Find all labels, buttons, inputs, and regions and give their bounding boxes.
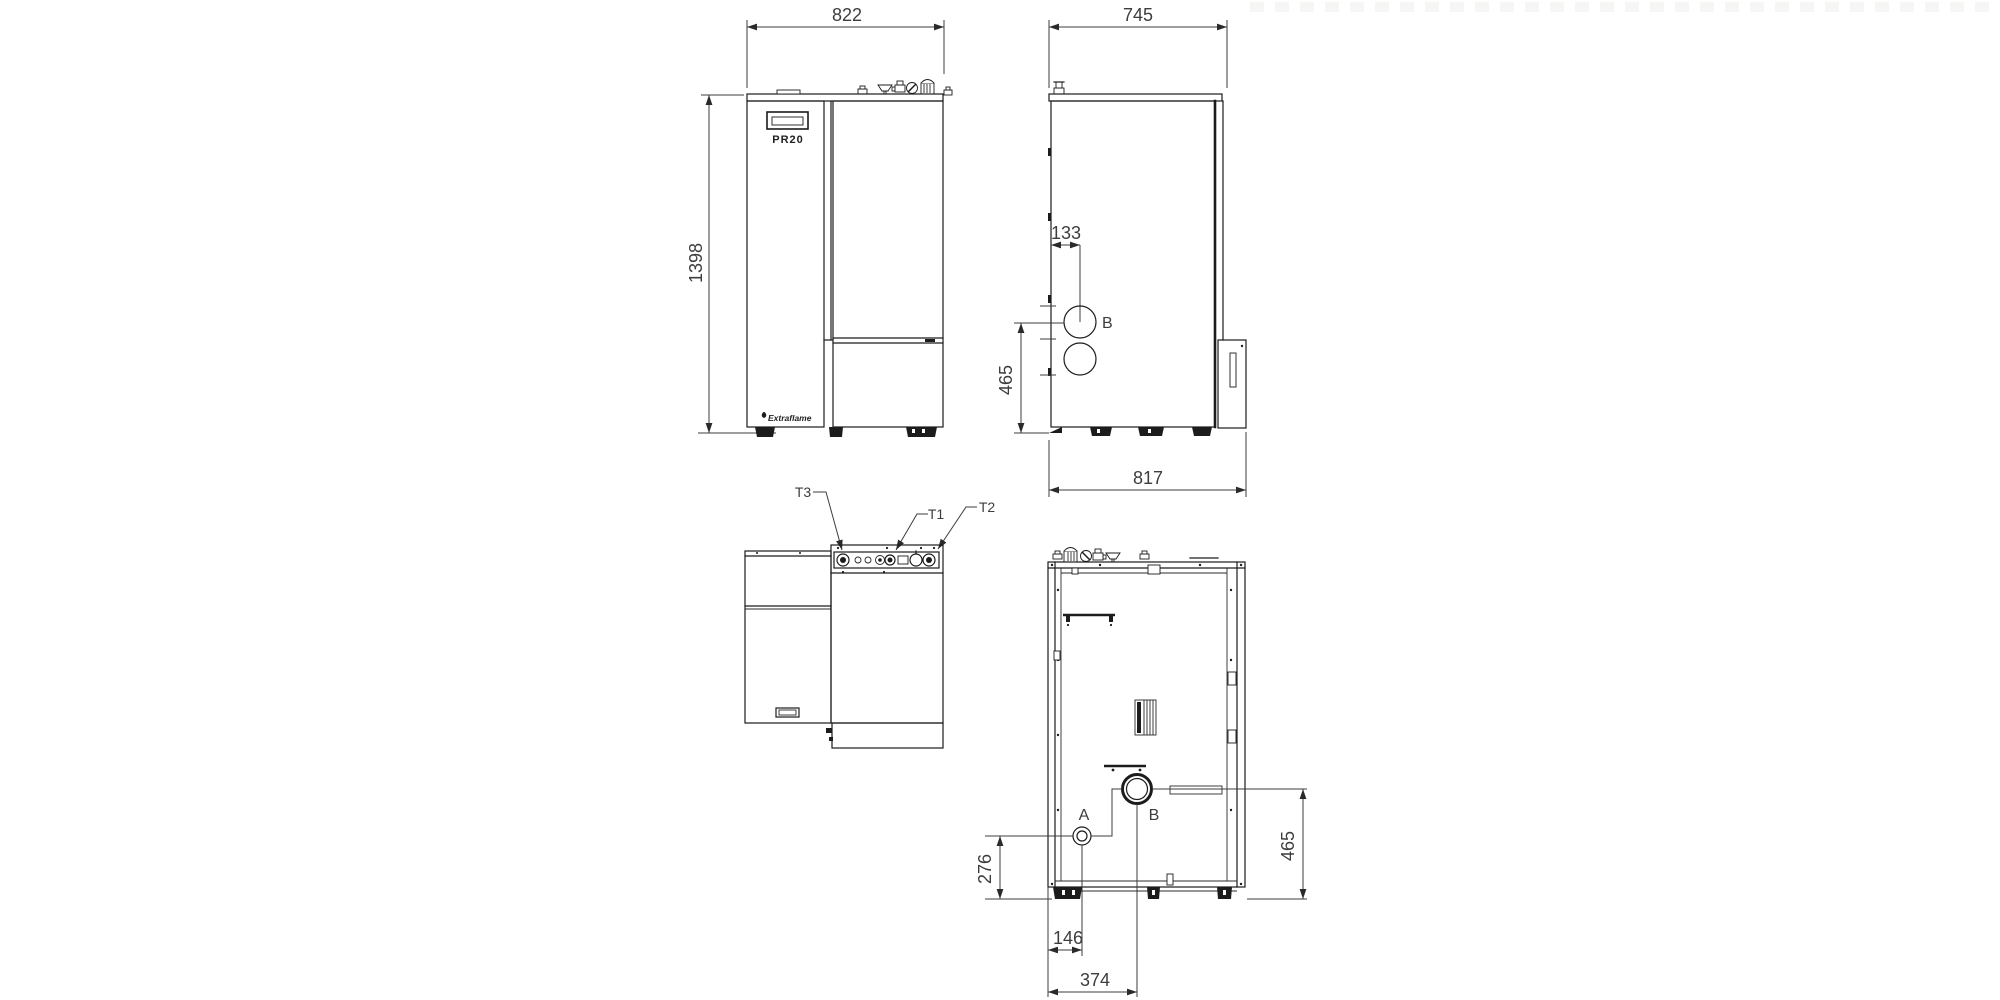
hydraulic-connections xyxy=(837,547,935,573)
boiler-body-connections xyxy=(831,545,943,723)
boiler-body-side xyxy=(1051,101,1215,427)
smoke-box-slot xyxy=(1230,353,1236,387)
rear-drain-label: A xyxy=(1079,807,1090,824)
front-view: 822 1398 PR20 Extraflame xyxy=(686,5,952,437)
pellet-hopper-front xyxy=(747,101,824,427)
drain-height-dimension: 276 xyxy=(975,836,1052,899)
rear-screws xyxy=(1051,564,1242,885)
safety-valve-group-icon xyxy=(858,80,952,96)
brand-logo: Extraflame xyxy=(762,412,812,423)
hopper-vent xyxy=(776,708,799,717)
side-flue-label: B xyxy=(1102,315,1113,332)
rear-grille xyxy=(1135,700,1156,735)
flue-offset-value: 133 xyxy=(1051,223,1081,243)
flue-offset-dimension-rear: 374 xyxy=(1048,970,1137,992)
drain-height-value: 276 xyxy=(975,854,995,884)
front-width-dimension: 822 xyxy=(747,5,944,88)
t1-callout: T1 xyxy=(896,506,944,550)
boiler-body-front xyxy=(833,101,943,427)
rear-flue-label: B xyxy=(1149,807,1160,824)
rear-view: B A 276 xyxy=(975,548,1307,998)
side-top-fitting-icon xyxy=(1054,82,1064,94)
faint-dashed-strip xyxy=(1246,2,2000,14)
boiler-dimensional-drawing: 822 1398 PR20 Extraflame xyxy=(0,0,2000,1000)
front-feet xyxy=(755,427,937,437)
top-cover-ledge xyxy=(777,90,800,94)
brand-name: Extraflame xyxy=(768,413,812,423)
t3-callout: T3 xyxy=(795,484,842,550)
front-width-value: 822 xyxy=(832,5,862,25)
flame-icon xyxy=(762,412,767,418)
flue-outlet-b xyxy=(1104,766,1222,804)
drain-offset-dimension: 146 xyxy=(1048,928,1083,950)
drain-offset-value: 146 xyxy=(1053,928,1083,948)
drain-outlet-a xyxy=(1073,827,1091,845)
hinge-upper xyxy=(1228,672,1236,685)
hinge-lower xyxy=(1228,730,1236,743)
t2-label: T2 xyxy=(979,499,996,515)
lower-connection-side xyxy=(1064,343,1096,375)
side-view: 745 133 B xyxy=(996,5,1246,497)
front-height-dimension: 1398 xyxy=(686,95,776,433)
depth-value: 817 xyxy=(1133,468,1163,488)
ab-leader xyxy=(1091,789,1122,836)
t3-label: T3 xyxy=(795,484,812,500)
model-logo: PR20 xyxy=(772,134,804,146)
side-top-cover xyxy=(1049,94,1222,101)
flue-offset-value-rear: 374 xyxy=(1080,970,1110,990)
side-feet xyxy=(1049,427,1212,436)
pellet-hopper-rear xyxy=(745,551,831,723)
display-screen xyxy=(772,117,803,125)
side-width-value: 745 xyxy=(1123,5,1153,25)
flue-offset-dimension: 133 xyxy=(1051,223,1081,322)
technical-drawing-page: 822 1398 PR20 Extraflame xyxy=(0,0,2000,1000)
depth-dimension: 817 xyxy=(1049,432,1246,497)
base-extension xyxy=(832,723,943,748)
side-width-dimension: 745 xyxy=(1049,5,1227,88)
rear-flue-height-dimension: 465 xyxy=(1152,789,1307,899)
connections-view: T3 T1 T2 xyxy=(745,484,995,748)
rear-valve-group-icon xyxy=(1053,548,1218,563)
side-flue-height-value: 465 xyxy=(996,365,1016,395)
rear-bracket xyxy=(1063,615,1115,626)
front-height-value: 1398 xyxy=(686,243,706,283)
t1-label: T1 xyxy=(928,506,945,522)
top-cover xyxy=(747,94,943,101)
rear-feet xyxy=(1053,887,1237,899)
t2-callout: T2 xyxy=(938,499,995,549)
rear-flue-height-value: 465 xyxy=(1278,831,1298,861)
